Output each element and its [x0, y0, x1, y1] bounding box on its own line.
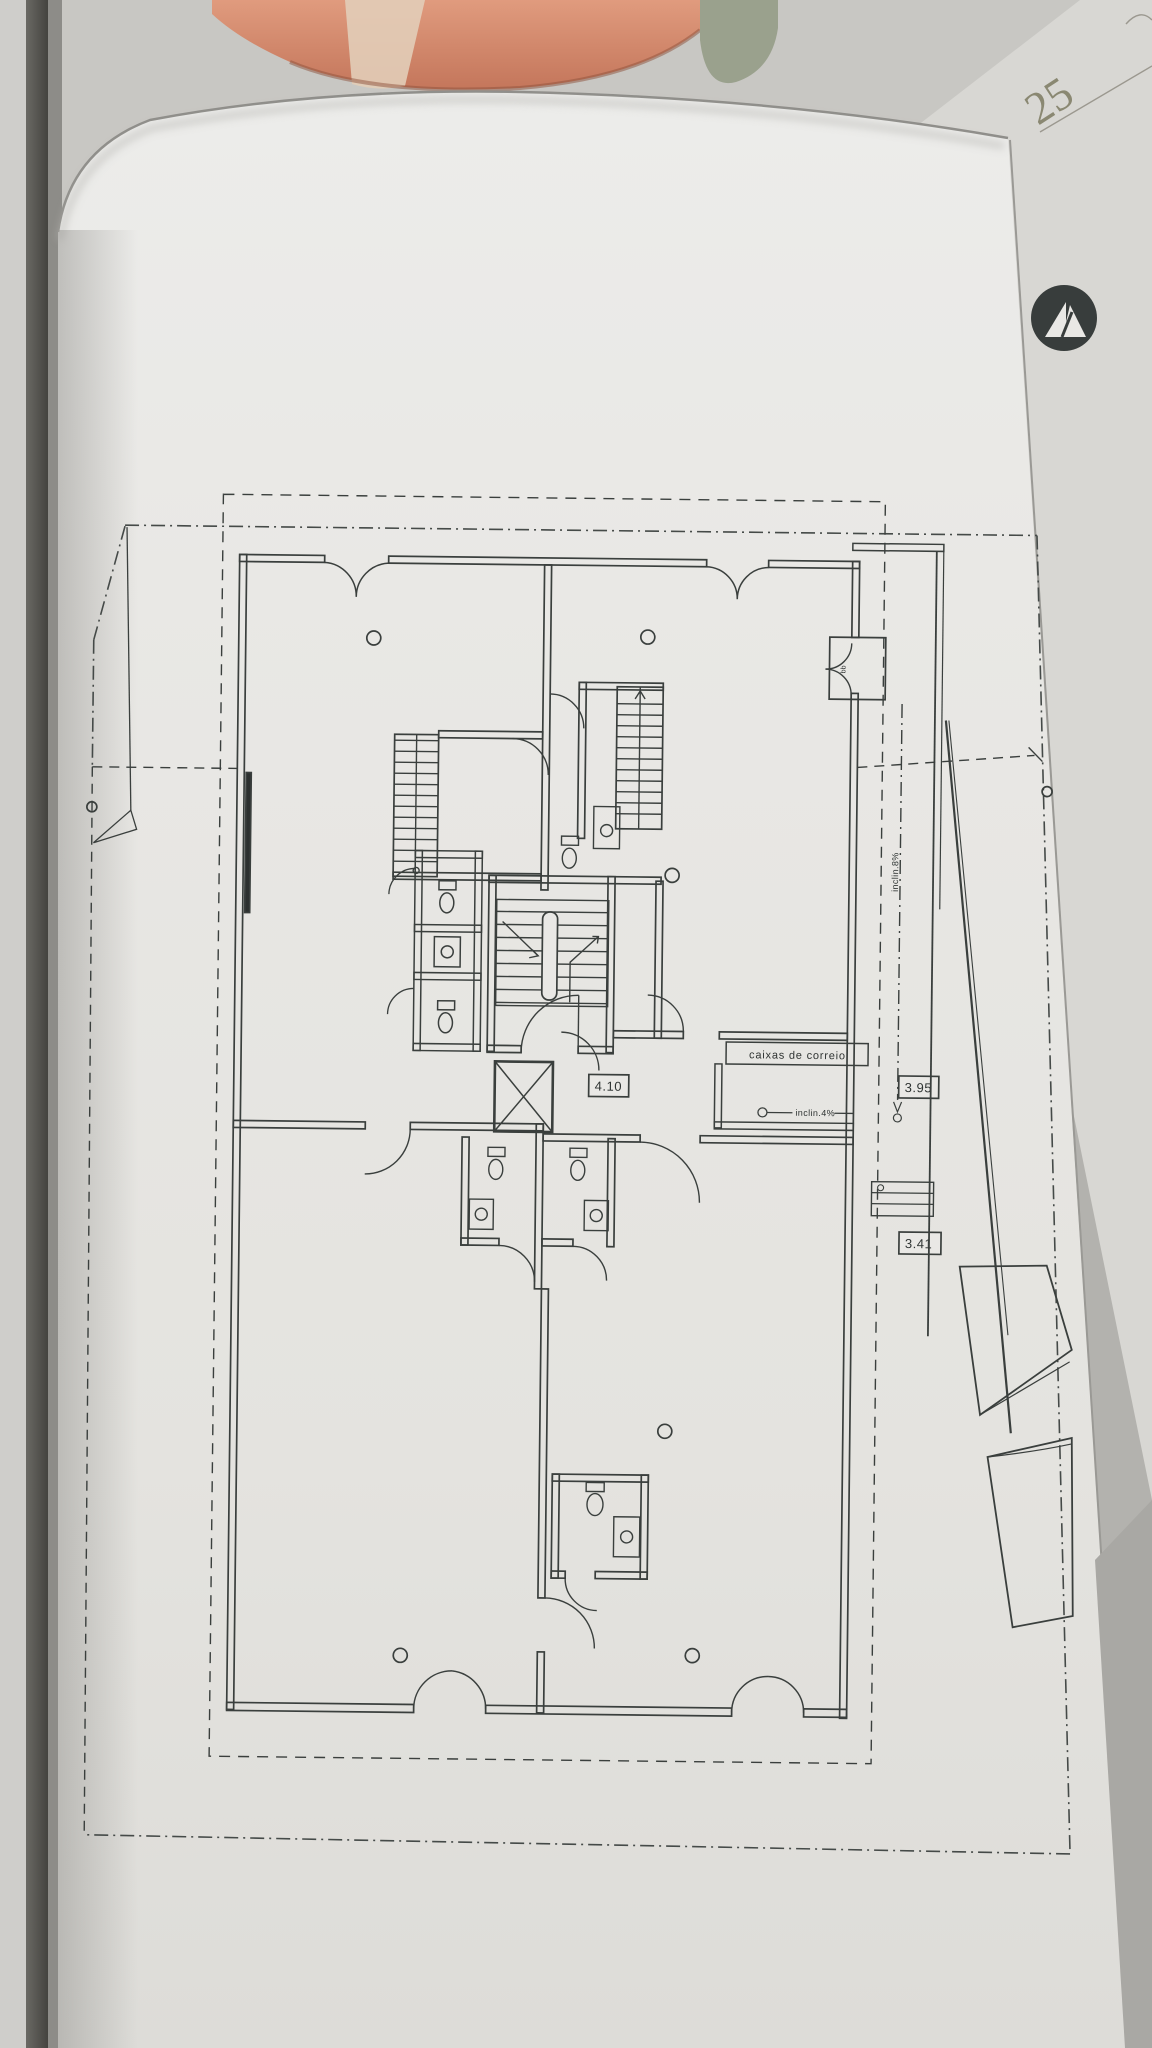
closet-marker-label: bb	[840, 665, 847, 673]
dim-entry-label: 3.95	[905, 1080, 932, 1095]
mailbox-label: caixas de correio	[749, 1049, 846, 1062]
ramp-slope-label: inclin.8%	[890, 852, 900, 892]
photo-of-floor-plan: 25	[0, 0, 1152, 2048]
balcony-rail	[245, 773, 252, 913]
entry-slope-label: inclin.4%	[795, 1108, 835, 1118]
floor-plan-photo: 25	[0, 0, 1152, 2048]
architect-logo-icon	[1031, 285, 1097, 351]
drawing-sheet	[58, 92, 1133, 2048]
dim-hall-label: 4.10	[595, 1079, 622, 1094]
window-frame-left	[0, 0, 62, 2048]
